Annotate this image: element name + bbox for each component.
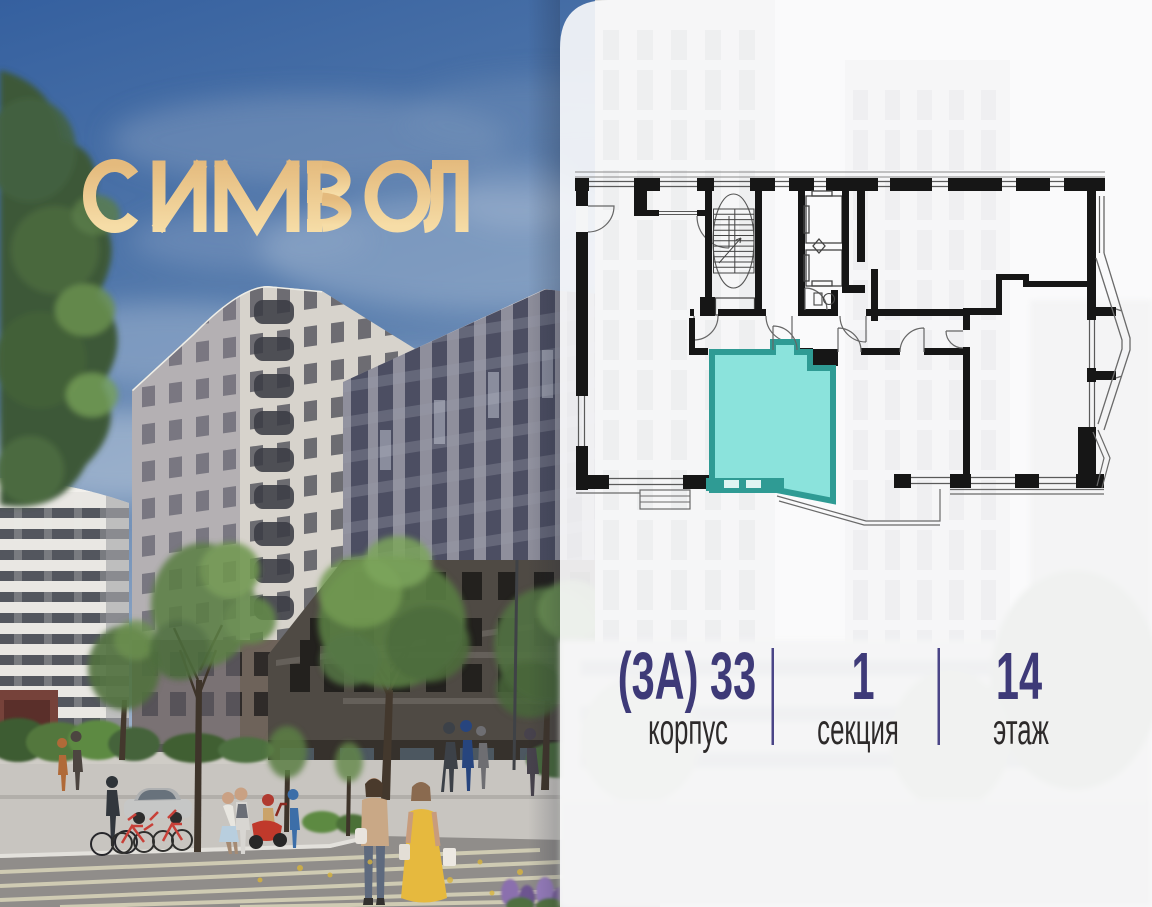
svg-text:секция: секция <box>817 705 899 754</box>
svg-text:корпус: корпус <box>648 705 728 754</box>
svg-text:1: 1 <box>851 639 874 714</box>
svg-text:этаж: этаж <box>993 705 1049 754</box>
svg-text:(3А) 33: (3А) 33 <box>618 639 757 714</box>
svg-text:14: 14 <box>996 639 1042 714</box>
